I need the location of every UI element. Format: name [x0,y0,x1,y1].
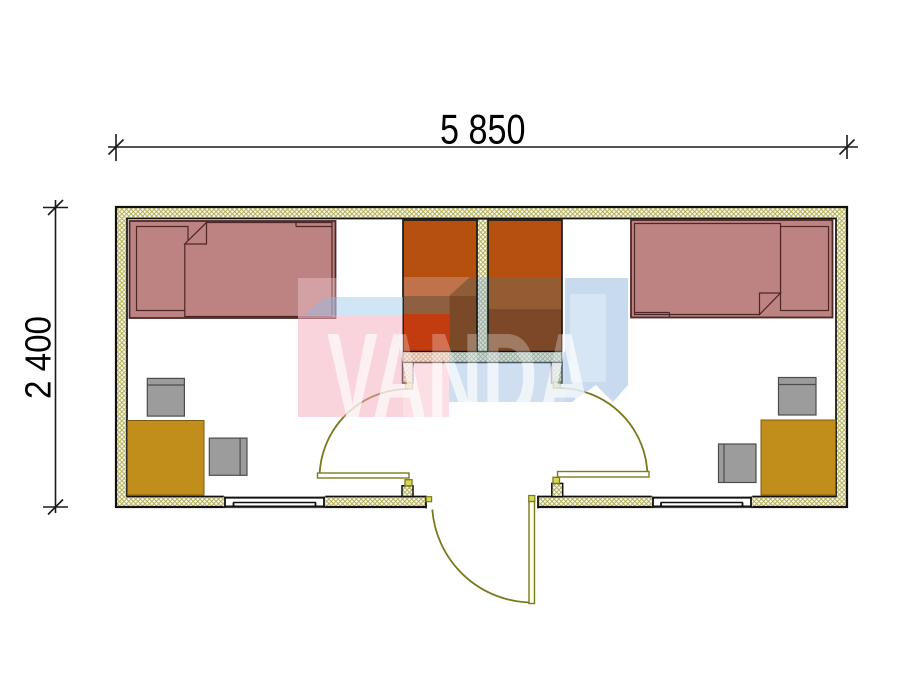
svg-text:5 850: 5 850 [440,106,526,153]
svg-text:2 400: 2 400 [18,316,59,399]
